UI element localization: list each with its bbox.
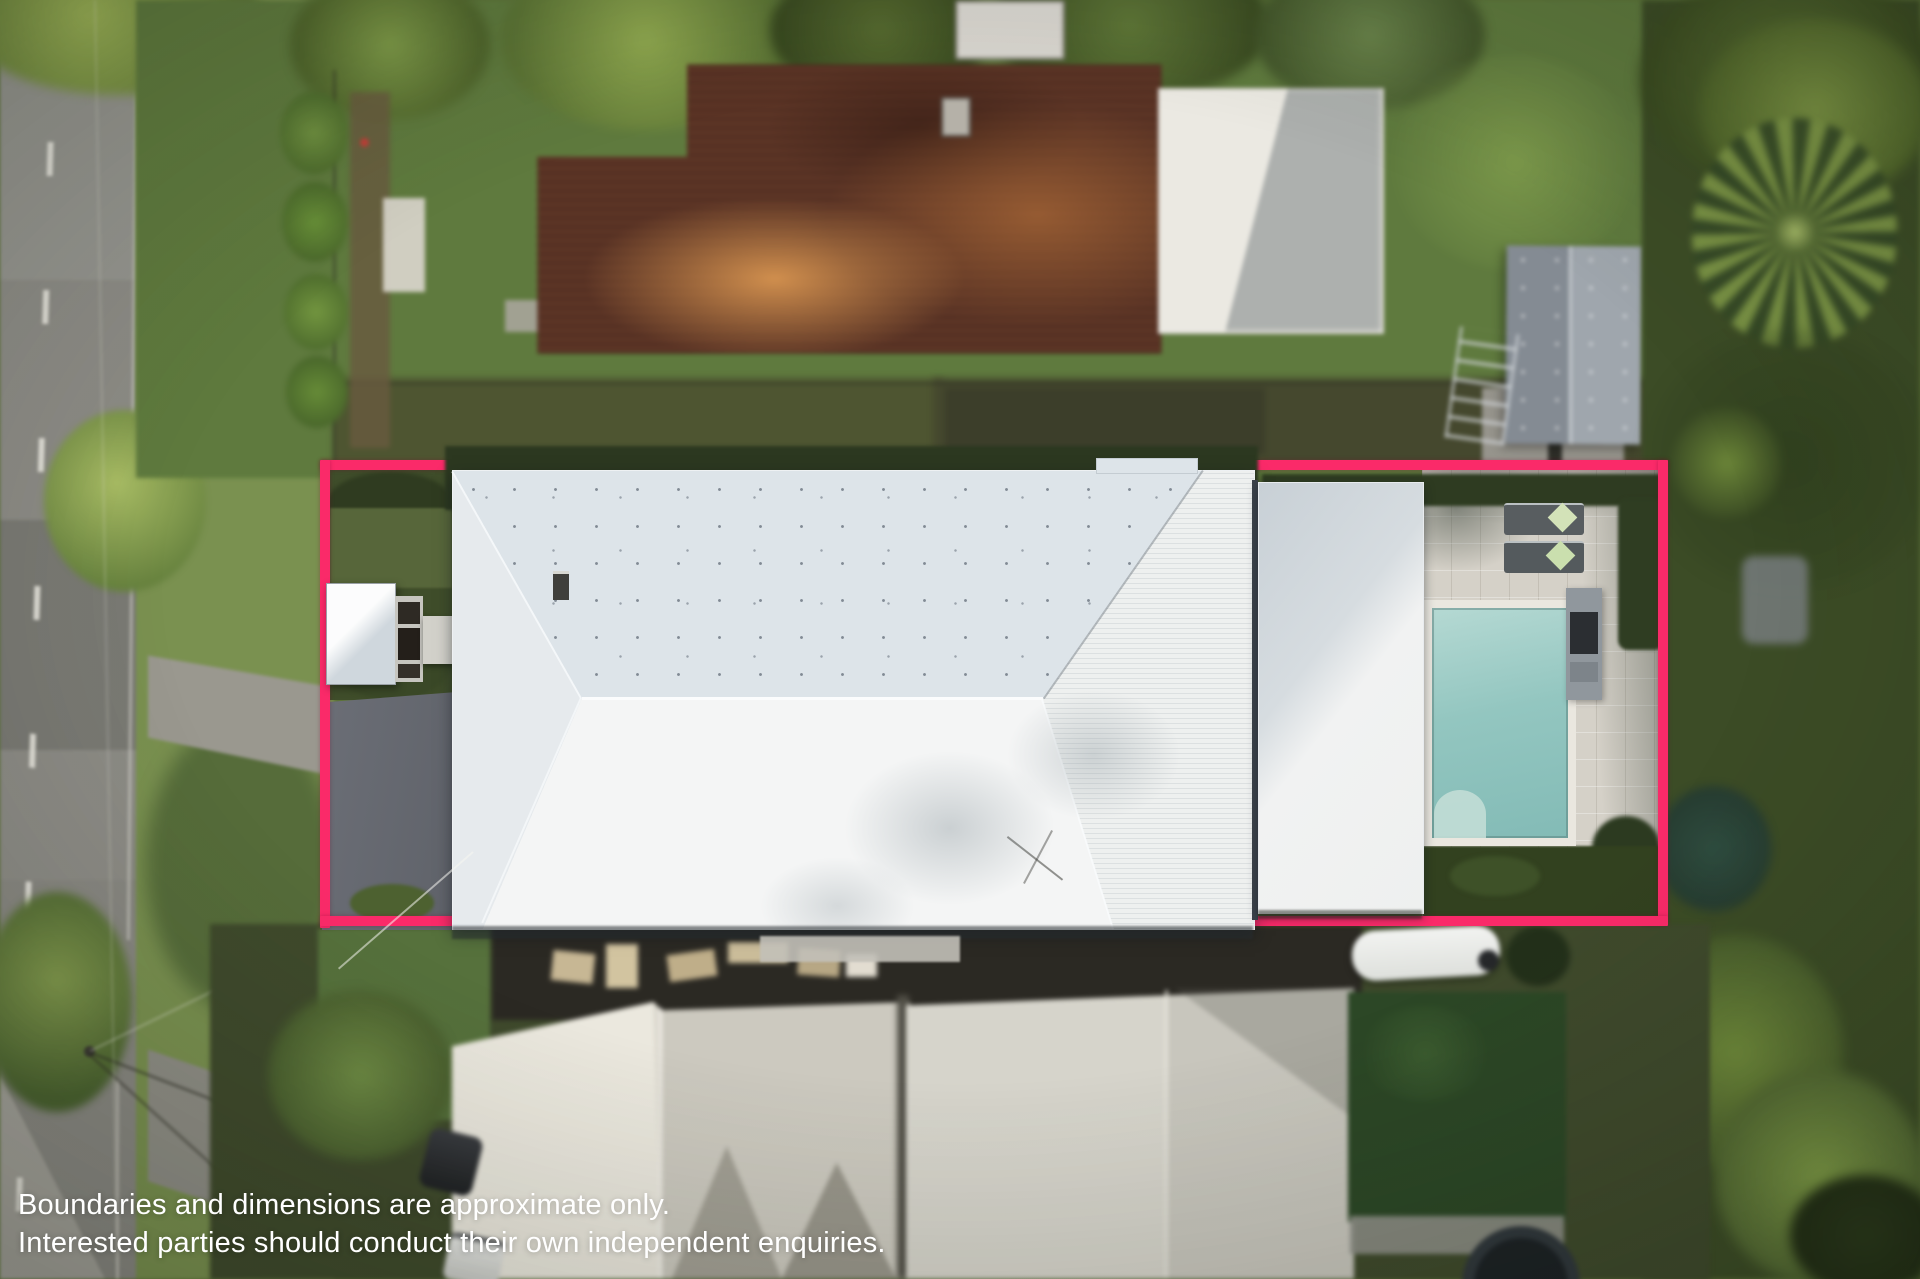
- bbq-grill: [1570, 612, 1598, 654]
- boundary-right: [1658, 460, 1668, 920]
- disclaimer-line-1: Boundaries and dimensions are approximat…: [18, 1186, 886, 1224]
- front-lawn-patch: [330, 508, 452, 588]
- tower-walkway: [423, 616, 455, 664]
- main-house-roof: [452, 470, 1255, 930]
- aerial-property-photo: Boundaries and dimensions are approximat…: [0, 0, 1920, 1279]
- boundary-left: [320, 460, 330, 928]
- subject-property: [0, 0, 1920, 1279]
- rear-porch: [760, 936, 960, 962]
- annex-opening-1: [398, 602, 420, 624]
- annex-opening-3: [398, 664, 420, 678]
- garden-bed-highlight: [1450, 856, 1540, 896]
- disclaimer-line-2: Interested parties should conduct their …: [18, 1224, 886, 1262]
- annex-opening-2: [398, 628, 420, 660]
- disclaimer-text: Boundaries and dimensions are approximat…: [18, 1186, 886, 1262]
- rear-wing-roof: [1258, 482, 1424, 914]
- rear-wing-shadow: [1258, 910, 1422, 919]
- bbq-side-table: [1570, 662, 1598, 682]
- pool-steps: [1434, 790, 1486, 838]
- roof-tree-shadow: [453, 471, 1254, 929]
- entry-tower-roof: [326, 583, 396, 685]
